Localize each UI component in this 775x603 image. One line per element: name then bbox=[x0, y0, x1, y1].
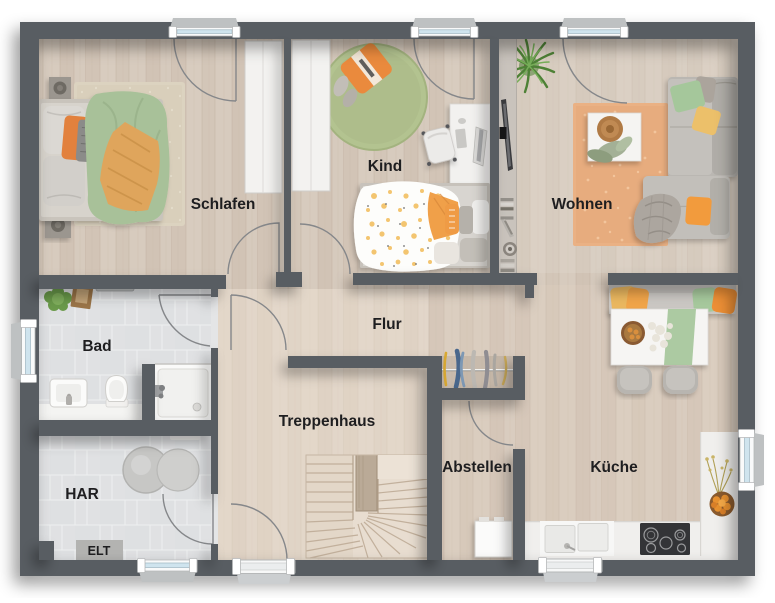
svg-text:Küche: Küche bbox=[590, 459, 638, 476]
svg-text:Schlafen: Schlafen bbox=[191, 196, 256, 213]
svg-text:Flur: Flur bbox=[372, 316, 401, 333]
svg-text:HAR: HAR bbox=[65, 486, 99, 503]
svg-text:Wohnen: Wohnen bbox=[552, 196, 613, 213]
svg-text:Bad: Bad bbox=[82, 338, 111, 355]
svg-text:Kind: Kind bbox=[368, 158, 402, 175]
svg-text:Abstellen: Abstellen bbox=[442, 459, 512, 476]
svg-text:Treppenhaus: Treppenhaus bbox=[279, 413, 375, 430]
svg-text:ELT: ELT bbox=[88, 544, 111, 558]
